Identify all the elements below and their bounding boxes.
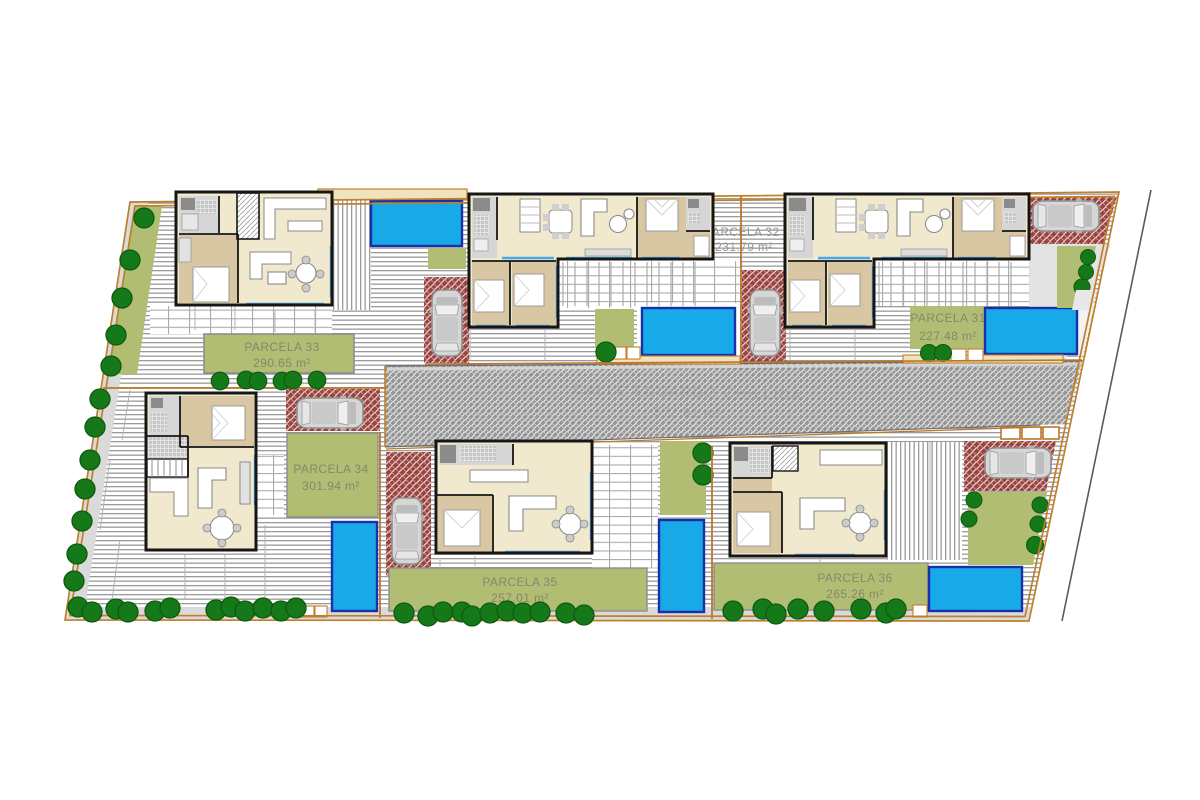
svg-text:265.26 m²: 265.26 m² — [826, 587, 884, 601]
svg-text:231.79 m²: 231.79 m² — [715, 240, 773, 254]
svg-text:PARCELA 36: PARCELA 36 — [817, 571, 892, 585]
svg-text:227.48 m²: 227.48 m² — [919, 329, 977, 343]
svg-text:PARCELA 32: PARCELA 32 — [704, 225, 779, 239]
svg-text:PARCELA 34: PARCELA 34 — [293, 462, 368, 476]
svg-text:PARCELA 35: PARCELA 35 — [482, 575, 557, 589]
svg-text:PARCELA 31: PARCELA 31 — [910, 311, 985, 325]
svg-text:301.94 m²: 301.94 m² — [302, 479, 360, 493]
svg-text:PARCELA 33: PARCELA 33 — [244, 340, 319, 354]
svg-text:290.65 m²: 290.65 m² — [253, 356, 311, 370]
svg-text:572.91 m²: 572.91 m² — [654, 404, 722, 421]
